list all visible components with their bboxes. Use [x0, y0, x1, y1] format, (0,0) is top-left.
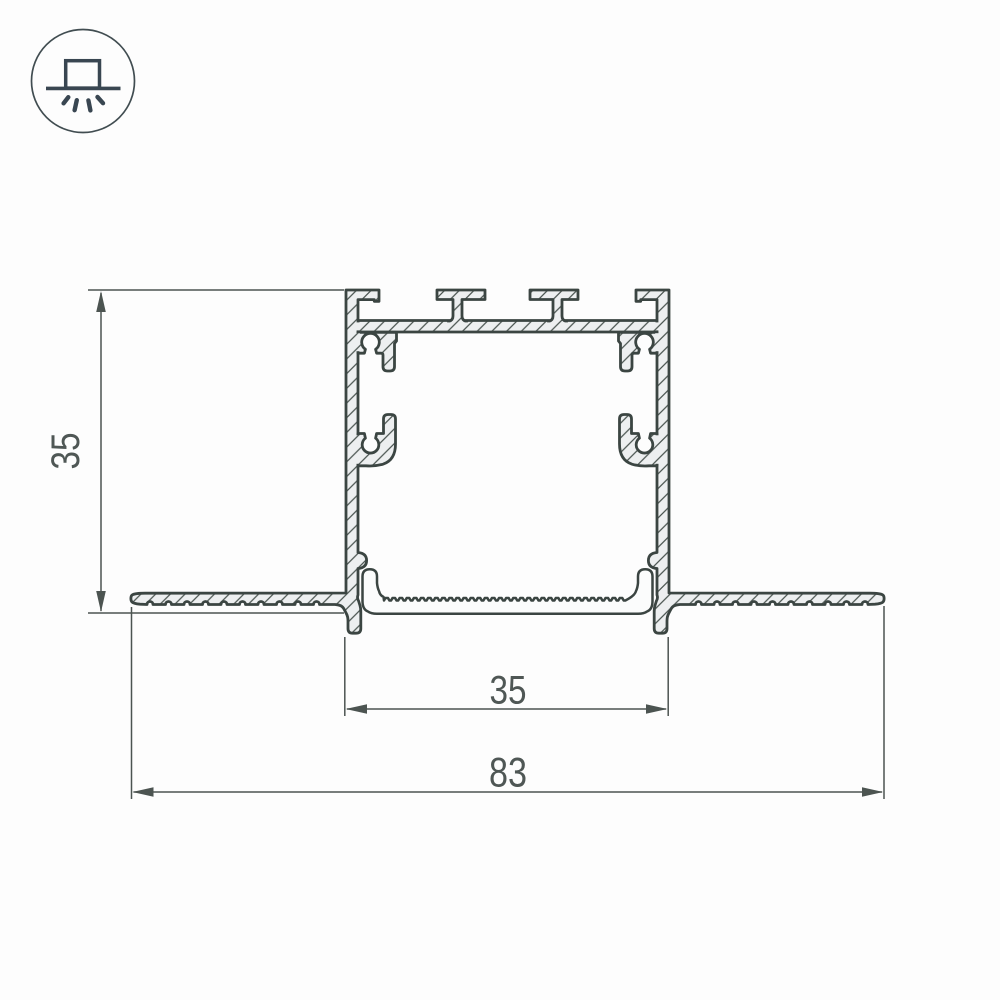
- svg-text:83: 83: [489, 749, 527, 796]
- svg-text:35: 35: [44, 433, 88, 470]
- svg-text:35: 35: [490, 669, 527, 713]
